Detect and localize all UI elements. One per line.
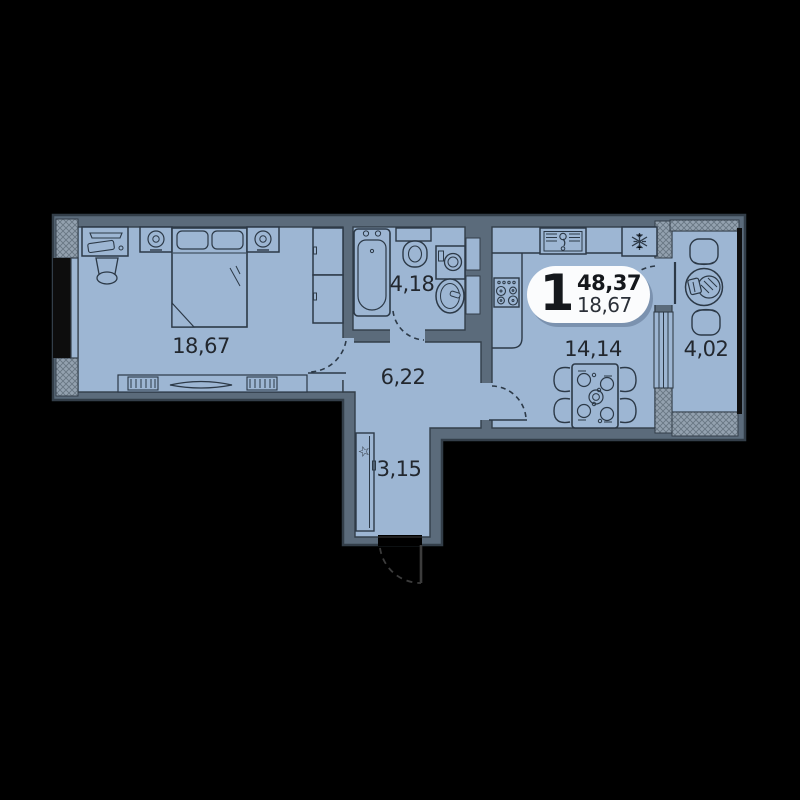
stove-icon bbox=[494, 278, 519, 307]
dining-table-icon bbox=[572, 364, 618, 428]
vent-shaft-lower bbox=[466, 276, 480, 314]
bathroom-area-label: 4,18 bbox=[390, 272, 435, 296]
floor-plan-canvas: 18,67 4,18 6 bbox=[0, 0, 800, 800]
desk-icon bbox=[82, 227, 128, 256]
hallway-area-label: 6,22 bbox=[381, 365, 426, 389]
radiator-icon bbox=[128, 377, 158, 390]
apartment-type-badge: 1 48,37 18,67 bbox=[527, 264, 653, 327]
nightstand-lamp-icon bbox=[140, 227, 172, 252]
badge-rooms-count: 1 bbox=[540, 264, 575, 322]
washing-machine-icon bbox=[436, 246, 465, 279]
fridge-icon bbox=[622, 227, 657, 256]
entrance-door bbox=[378, 535, 422, 583]
badge-living-area: 18,67 bbox=[577, 293, 632, 317]
kitchen-door-opening bbox=[480, 383, 493, 420]
entrance-door-swing bbox=[380, 548, 421, 583]
living-room-area-label: 18,67 bbox=[172, 334, 230, 358]
kitchen-balcony-window bbox=[654, 312, 673, 388]
entry-hall-area-label: 3,15 bbox=[377, 457, 422, 481]
floor-plan-screenshot: 18,67 4,18 6 bbox=[0, 0, 800, 800]
kitchen-sink-icon bbox=[540, 228, 586, 254]
balcony-area-label: 4,02 bbox=[684, 337, 729, 361]
balcony-table-icon bbox=[686, 269, 723, 306]
wardrobe-icon bbox=[313, 228, 343, 323]
living-room-window-band bbox=[118, 375, 307, 392]
kitchen-area-label: 14,14 bbox=[564, 337, 622, 361]
living-room-window-glass bbox=[53, 258, 71, 358]
double-bed-icon bbox=[172, 228, 247, 327]
badge-total-area: 48,37 bbox=[577, 271, 641, 295]
bathtub-icon bbox=[354, 229, 390, 316]
desk-chair-icon bbox=[96, 258, 118, 284]
balcony-window-glass bbox=[737, 228, 742, 414]
living-room-window-frame bbox=[71, 258, 78, 358]
entry-closet-icon: ☆ bbox=[356, 433, 376, 531]
balcony-chair-icon bbox=[690, 239, 718, 265]
balcony-door-opening bbox=[654, 258, 673, 305]
vent-shaft-upper bbox=[466, 238, 480, 270]
bathroom-sink-icon bbox=[436, 279, 464, 313]
bathroom-door-opening bbox=[390, 329, 425, 343]
radiator-icon bbox=[247, 377, 277, 390]
balcony-chair-icon bbox=[692, 310, 720, 336]
nightstand-lamp-icon bbox=[247, 227, 279, 252]
